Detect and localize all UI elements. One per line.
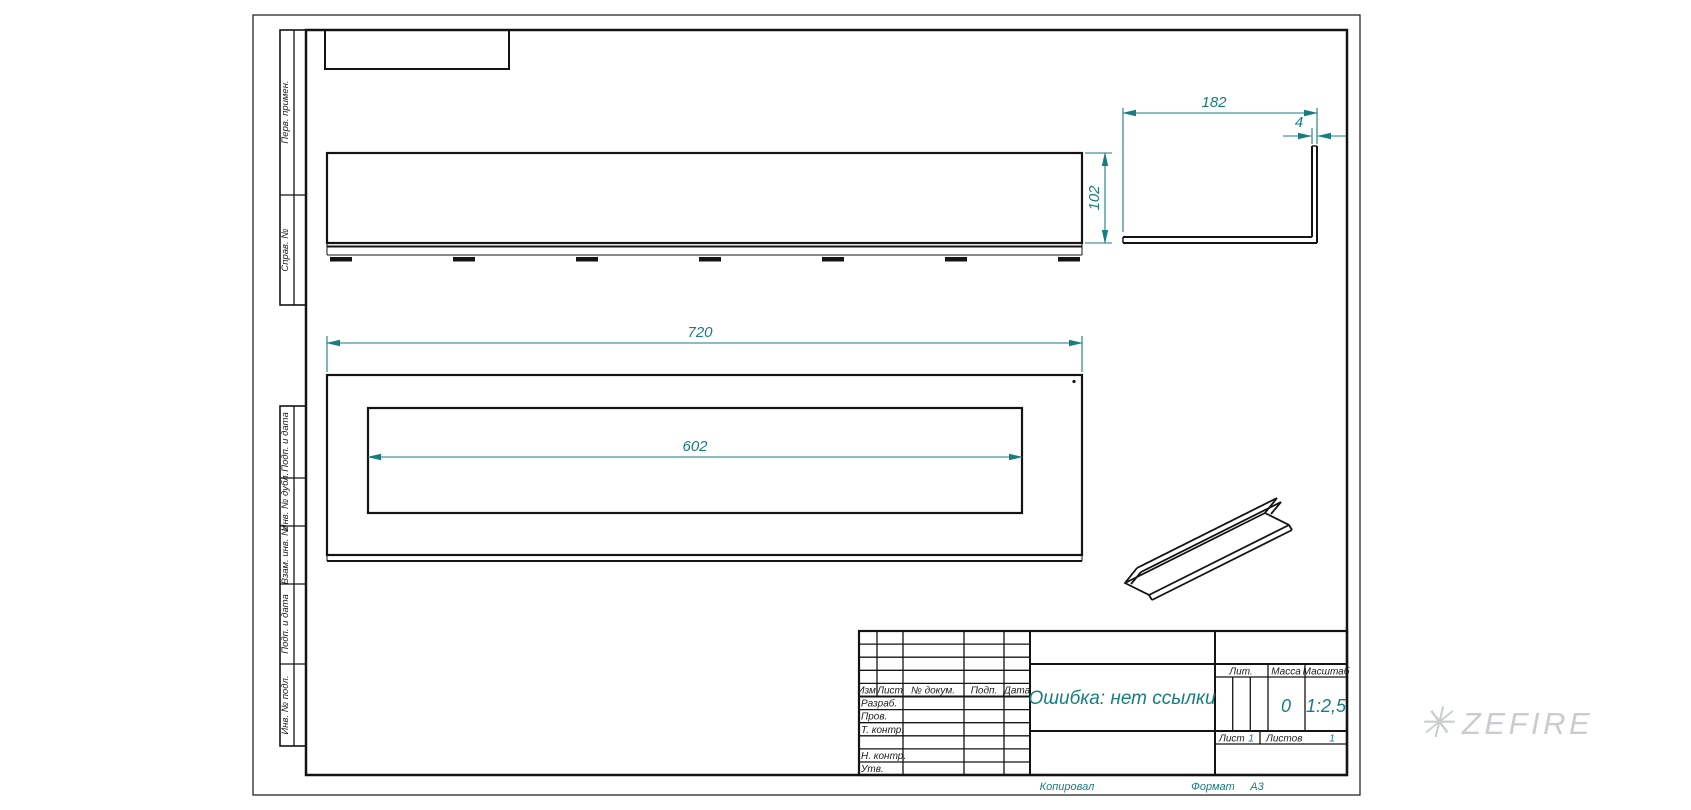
dim-4-text: 4 — [1295, 114, 1303, 131]
tb-col-ndok: № докум. — [911, 686, 955, 697]
strip-label-vzam-inv: Взам. инв. № — [280, 526, 291, 585]
strip-label-sprav-no: Справ. № — [280, 228, 291, 271]
tb-col-data: Дата — [1003, 686, 1031, 697]
title-block: Изм. Лист № докум. Подп. Дата Разраб. Пр… — [857, 631, 1349, 775]
strip-label-perv-primen: Перв. примен. — [280, 80, 291, 143]
dim-602: 602 — [368, 438, 1022, 457]
tb-massa-label: Масса — [1271, 667, 1301, 678]
dim-102-text: 102 — [1086, 185, 1103, 211]
footer-format-label: Формат — [1191, 781, 1235, 793]
front-view: 102 — [327, 153, 1112, 262]
dim-182-text: 182 — [1201, 94, 1227, 111]
tb-list-label: Лист — [1218, 734, 1245, 745]
zefire-watermark: ✳ ZEFIRE — [1418, 699, 1593, 746]
tb-listov-label: Листов — [1265, 734, 1302, 745]
plan-slot — [368, 408, 1022, 513]
tb-listov-value: 1 — [1329, 733, 1335, 745]
strip-label-podp-data-2: Подп. и дата — [280, 594, 291, 653]
tb-col-podp: Подп. — [971, 686, 998, 697]
strip-label-inv-dubl: Инв. № дубл. — [280, 473, 291, 531]
dim-720-text: 720 — [687, 324, 713, 341]
tb-masshtab-label: Масштаб — [1303, 666, 1350, 678]
left-column-strip: Перв. примен. Справ. № Подп. и дата Инв.… — [280, 30, 306, 746]
tb-row-utv: Утв. — [860, 764, 884, 775]
cad-screenshot: Перв. примен. Справ. № Подп. и дата Инв.… — [0, 0, 1691, 810]
footer-format-value: А3 — [1249, 781, 1264, 793]
dim-182: 182 — [1123, 94, 1317, 232]
tb-row-prov: Пров. — [861, 712, 887, 723]
tb-row-razrab: Разраб. — [861, 698, 897, 710]
tb-document-name: Ошибка: нет ссылки — [1028, 688, 1215, 709]
dim-4: 4 — [1283, 114, 1346, 144]
dim-720: 720 — [327, 324, 1082, 372]
isometric-view — [1125, 498, 1292, 600]
drawing-sheet: Перв. примен. Справ. № Подп. и дата Инв.… — [0, 0, 1691, 810]
side-view: 182 4 — [1123, 94, 1346, 243]
tb-scale-value: 1:2,5 — [1306, 696, 1347, 716]
strip-label-inv-podl: Инв. № подл. — [280, 676, 291, 735]
dim-102: 102 — [1085, 153, 1112, 243]
plan-view: 720 602 — [327, 324, 1082, 561]
tb-massa-value: 0 — [1281, 696, 1291, 716]
watermark-text: ZEFIRE — [1461, 706, 1593, 741]
front-view-feet — [330, 257, 1080, 262]
sheet-frame — [253, 15, 1360, 795]
tb-col-list: Лист — [876, 686, 903, 697]
snowflake-icon: ✳ — [1418, 699, 1455, 746]
footer-kopiroval: Копировал — [1040, 781, 1095, 793]
strip-label-podp-data-1: Подп. и дата — [280, 412, 291, 471]
footer-margin: Копировал Формат А3 — [1040, 781, 1265, 793]
tb-col-izm: Изм. — [857, 686, 878, 697]
dim-602-text: 602 — [682, 438, 708, 455]
tb-lit-label: Лит. — [1228, 667, 1252, 678]
tb-row-tkontr: Т. контр. — [861, 725, 904, 736]
tb-list-value: 1 — [1248, 733, 1254, 745]
top-left-designation-box — [325, 30, 509, 69]
tb-row-nkontr: Н. контр. — [861, 751, 906, 762]
